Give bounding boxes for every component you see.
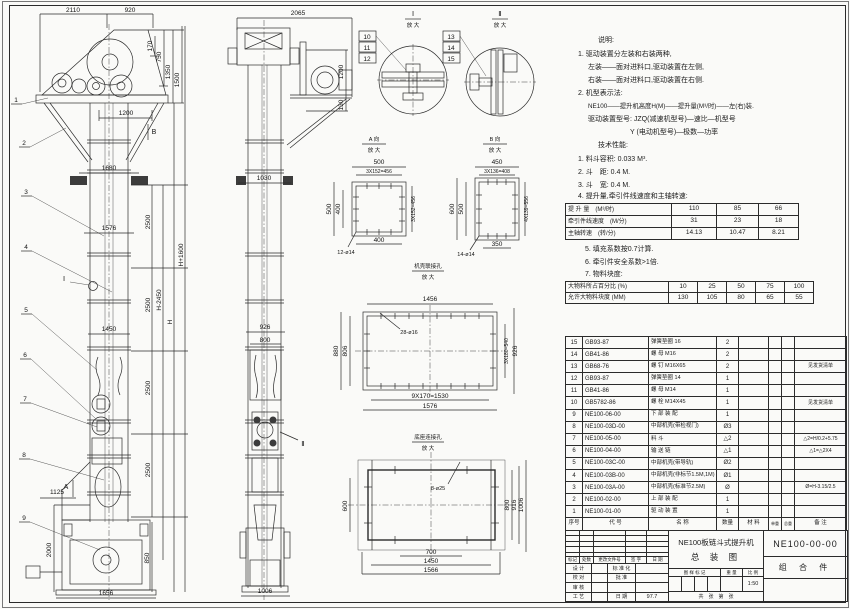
bom-row: 6NE100-04-00输 送 链△1△1=△2X4 — [566, 445, 847, 457]
balloon-4: 4 — [24, 244, 28, 251]
detail-i-scale: 放 大 — [407, 21, 420, 29]
tech-heading: 技术性能: — [598, 142, 628, 150]
dim-label: 926 — [512, 345, 519, 356]
view-b-title: B 向 — [490, 135, 501, 143]
view-a-flange: A 向 放 大 500 3X152=456 500 400 3X152=456 … — [326, 135, 417, 256]
dim-label: 1576 — [423, 403, 438, 410]
dim-label: 2500 — [145, 297, 152, 312]
bom-row: 9NE100-06-00下 部 装 配1 — [566, 409, 847, 421]
hole-callout: 28-ø16 — [400, 330, 417, 336]
balloon-3: 3 — [24, 189, 28, 196]
dim-label: 500 — [458, 203, 465, 214]
dim-label: H — [167, 319, 174, 324]
hole-callout: 14-ø14 — [457, 252, 474, 258]
dim-label: 1350 — [165, 64, 172, 79]
balloon-6: 6 — [23, 352, 27, 359]
callout-15: 15 — [447, 56, 455, 63]
drawing-title-line2: 总 装 图 — [691, 551, 741, 563]
bom-row: 8NE100-03D-00中部机壳(带检视门)Ø3 — [566, 421, 847, 433]
note-line: NE100——提升机高度H(M)——提升量(M³/时)——左(右)装. — [588, 103, 754, 111]
drawing-title-cell: NE100板链斗式提升机 总 装 图 — [668, 530, 764, 569]
note-line: 1. 驱动装置分左装和右装两种, — [578, 51, 672, 59]
tech-item: 2. 斗 距: 0.4 M. — [578, 169, 630, 177]
dim-label: 3X152=456 — [411, 196, 417, 222]
bom-row: 15GB93-87弹簧垫圈 162 — [566, 337, 847, 349]
view-b-flange: B 向 放 大 450 3X136=408 600 500 4X139=556 … — [449, 135, 530, 258]
hole-callout: 12-ø14 — [337, 250, 354, 256]
view-c-scale: 放 大 — [422, 273, 435, 281]
bom-row: 1NE100-01-00驱 动 装 置1 — [566, 506, 847, 518]
drawing-number: NE100-00-00 — [763, 530, 848, 557]
dim-label: 600 — [342, 500, 349, 511]
balloon-2: 2 — [22, 140, 26, 147]
dim-label: 1456 — [423, 296, 438, 303]
parts-list-table: 15GB93-87弹簧垫圈 162 14GB41-86螺 母 M162 13GB… — [565, 336, 847, 531]
dim-label: 880 — [333, 345, 340, 356]
view-arrow-a: A — [64, 484, 69, 491]
note-line: 左装——面对进料口,驱动装置在左侧, — [588, 64, 704, 72]
dim-label: 700 — [426, 549, 437, 556]
balloon-1: 1 — [14, 97, 18, 104]
dim-label: 500 — [326, 203, 333, 214]
detail-ii-scale: 放 大 — [494, 21, 507, 29]
part-kind: 组 合 件 — [763, 556, 848, 579]
bom-header-row: 序号代 号名 称数量材 料单重总重备 注 — [566, 518, 847, 530]
dim-label: 2110 — [66, 7, 80, 14]
bom-row: 4NE100-03B-00中部机壳(非标节1.5M,1M)Ø1 — [566, 470, 847, 482]
dim-label: 850 — [144, 552, 151, 563]
dim-label: 926 — [260, 324, 271, 331]
dim-label: 1200 — [119, 110, 134, 117]
detail-view-ii: Ⅱ 放 大 13 14 15 — [443, 11, 536, 116]
bom-row: 5NE100-03C-00中部机壳(带导轨)Ø2 — [566, 457, 847, 469]
dim-label: 750 — [156, 51, 163, 62]
dim-label: 3X136=408 — [484, 169, 510, 175]
dim-label: 9X170=1530 — [411, 393, 448, 400]
tech-item: 3. 斗 宽: 0.4 M. — [578, 182, 630, 190]
dim-label: 2500 — [145, 462, 152, 477]
dim-label: 800 — [260, 337, 271, 344]
dim-label: 1450 — [424, 558, 439, 565]
dim-label: 1006 — [518, 497, 525, 512]
tech-item: 4. 提升量,牵引件线速度和主轴转速: — [578, 193, 688, 201]
dim-label: 400 — [374, 237, 385, 244]
dim-label: 1450 — [102, 326, 117, 333]
detail-i-title: Ⅰ — [412, 11, 414, 18]
tech-item: 6. 牵引件安全系数>1倍. — [585, 259, 659, 267]
dim-label: 130 — [338, 99, 345, 110]
bom-row: 12GB93-87弹簧垫圈 141 — [566, 373, 847, 385]
dim-label: 1006 — [258, 588, 273, 595]
balloon-5: 5 — [24, 307, 28, 314]
tech-item: 7. 物料块度: — [585, 271, 623, 279]
callout-12: 12 — [363, 56, 371, 63]
balloon-8: 8 — [22, 452, 26, 459]
dim-label: 2500 — [145, 380, 152, 395]
title-block: 标记 处数 更改文件号 签 字 日 期 设 计 标 准 化 校 对 批 准 审 … — [565, 530, 848, 602]
view-d-scale: 放 大 — [422, 444, 435, 452]
section-mark-b: B — [152, 129, 157, 136]
callout-14: 14 — [447, 45, 455, 52]
note-line: 驱动装置型号: JZQ(减速机型号)—速比—机型号 — [588, 116, 736, 124]
dim-label: 800 — [504, 499, 511, 510]
callout-13: 13 — [447, 34, 455, 41]
dim-label: 350 — [492, 241, 503, 248]
sig-date-label: 日 期 — [607, 592, 636, 603]
bom-row: 2NE100-02-00上 部 装 配1 — [566, 494, 847, 506]
dim-label: 3X152=456 — [366, 169, 392, 175]
drawing-date: 97.7 — [635, 592, 669, 603]
notes-heading: 说明: — [598, 37, 614, 45]
balloon-callouts: 1 2 3 4 5 6 7 8 9 — [11, 97, 112, 550]
callout-11: 11 — [364, 45, 371, 52]
dim-label: 2065 — [291, 10, 306, 17]
performance-table: 提 升 量 (M³/时)1108566 牵引件线速度 (M/分)312318 主… — [565, 203, 799, 240]
view-b-scale: 放 大 — [489, 146, 502, 154]
front-elevation-view: 2110 920 170 750 1350 1500 1200 B 1680 1… — [11, 7, 188, 600]
bom-row: 13GB68-76螺 钉 M16X652见发货清单 — [566, 361, 847, 373]
tech-item: 5. 填充系数按0.7计算. — [585, 246, 653, 254]
tech-item: 1. 料斗容积: 0.033 M³. — [578, 156, 647, 164]
view-a-title: A 向 — [369, 135, 379, 143]
bom-row: 7NE100-05-00料 斗△2△2=H/0.2+5.75 — [566, 433, 847, 445]
scale-value: 1:50 — [742, 576, 764, 592]
dim-label: H+1600 — [178, 243, 185, 266]
hole-callout: 8-ø25 — [431, 486, 445, 492]
dim-label: 1030 — [257, 175, 272, 182]
base-connection-holes-view: 底座连接孔 放 大 8-ø25 600 800 916 1006 — [342, 433, 526, 574]
view-d-title: 底座连接孔 — [414, 433, 442, 441]
bom-row: 11GB41-86螺 母 M141 — [566, 385, 847, 397]
section-mark-ii: Ⅱ — [301, 441, 304, 448]
dim-label: 2000 — [46, 542, 53, 557]
bom-row: 10GB5782-86螺 栓 M14X451见发货清单 — [566, 397, 847, 409]
lump-size-table: 大物料所占百分比 (%)10255075100 允许大物料块度 (MM)1301… — [565, 281, 814, 304]
drawing-title-line1: NE100板链斗式提升机 — [678, 537, 753, 548]
dim-label: 500 — [374, 159, 385, 166]
note-line: 右装——面对进料口,驱动装置在右侧. — [588, 77, 704, 85]
engineering-drawing-page: 2110 920 170 750 1350 1500 1200 B 1680 1… — [0, 0, 850, 609]
dim-label: 1500 — [174, 72, 181, 87]
dim-label: H-2450 — [156, 289, 163, 311]
dim-label: 1680 — [102, 165, 117, 172]
balloon-7: 7 — [23, 396, 27, 403]
dim-label: 1656 — [99, 590, 114, 597]
sig-process: 工 艺 — [565, 592, 592, 603]
dim-label: 1576 — [102, 225, 117, 232]
view-c-title: 机壳联接孔 — [414, 262, 442, 270]
detail-ii-title: Ⅱ — [498, 11, 501, 18]
dim-label: 806 — [342, 345, 349, 356]
bom-row: 14GB41-86螺 母 M162 — [566, 349, 847, 361]
note-line: Y (电动机型号)—极数—功率 — [630, 129, 718, 137]
callout-10: 10 — [363, 34, 371, 41]
dim-label: 600 — [449, 203, 456, 214]
dim-label: 170 — [147, 40, 154, 51]
balloon-9: 9 — [22, 515, 26, 522]
section-mark-i: Ⅰ — [63, 276, 65, 283]
dim-label: 2500 — [145, 214, 152, 229]
dim-label: 450 — [492, 159, 503, 166]
dim-label: 916 — [511, 499, 518, 510]
dim-label: 400 — [335, 203, 342, 214]
note-line: 2. 机型表示法: — [578, 90, 623, 98]
dim-label: 1200 — [338, 64, 345, 79]
bom-row: 3NE100-03A-00中部机壳(标准节2.5M)ØØ=H-3.15/2.5 — [566, 482, 847, 494]
dim-label: 1125 — [50, 489, 64, 496]
view-a-scale: 放 大 — [368, 146, 381, 154]
dim-label: 920 — [125, 7, 136, 14]
casing-connection-holes-view: 机壳联接孔 放 大 1456 28-ø16 880 806 3X180=540 — [333, 262, 519, 410]
revision-rows — [565, 530, 669, 557]
dim-label: 1566 — [424, 567, 439, 574]
detail-view-i: Ⅰ 放 大 10 11 12 — [359, 11, 449, 116]
side-elevation-view: 2065 1200 130 1030 926 800 Ⅱ 1006 — [228, 10, 352, 600]
dim-label: 4X139=556 — [524, 196, 530, 222]
sheet-count: 共 张 第 张 — [668, 591, 764, 602]
dim-label: 3X180=540 — [504, 338, 510, 364]
